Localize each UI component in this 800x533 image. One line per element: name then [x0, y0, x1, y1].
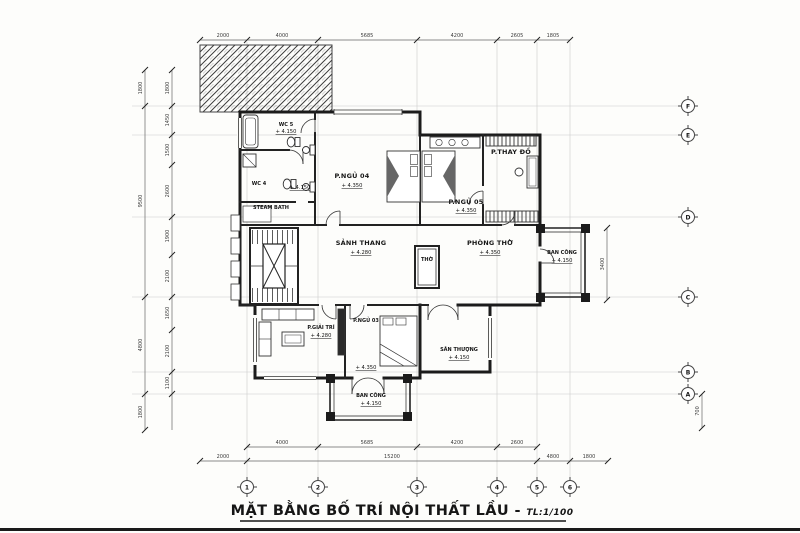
altar	[415, 246, 439, 288]
svg-text:E: E	[686, 133, 690, 140]
svg-text:C: C	[686, 295, 691, 302]
svg-text:1800: 1800	[165, 82, 171, 95]
floor-plan-drawing: WC 5 + 4.150 WC 4 + 4.150 STEAM BATH P.N…	[0, 0, 800, 533]
tv-console	[338, 309, 345, 355]
grid-bubble-5: 5	[527, 477, 547, 497]
grid-bubble-3: 3	[407, 477, 427, 497]
room-label: WC 5	[279, 122, 294, 128]
room-label: SẢNH THANG	[336, 237, 387, 247]
svg-text:1805: 1805	[547, 33, 560, 39]
room-label: WC 4	[252, 181, 267, 187]
room-label: P.NGỦ 03	[353, 316, 379, 324]
svg-text:B: B	[686, 370, 691, 377]
svg-text:1100: 1100	[165, 377, 171, 390]
room-label: P.NGỦ 04	[334, 170, 369, 180]
svg-text:4000: 4000	[276, 33, 289, 39]
grid-bubble-A: A	[678, 384, 698, 404]
grid-bubble-1: 1	[237, 477, 257, 497]
elevation-label: + 4.280	[351, 250, 372, 256]
svg-text:2: 2	[316, 485, 320, 492]
grid-bubble-E: E	[678, 125, 698, 145]
room-label: STEAM BATH	[253, 205, 289, 211]
svg-text:2000: 2000	[217, 454, 230, 460]
elevation-label: + 4.150	[361, 401, 382, 407]
room-label: P.GIẢI TRÍ	[307, 323, 334, 331]
svg-text:4800: 4800	[138, 339, 144, 352]
elevation-label: + 4.150	[290, 185, 311, 191]
elevation-label: + 4.350	[356, 365, 377, 371]
svg-text:4200: 4200	[451, 440, 464, 446]
elevation-label: + 4.280	[311, 333, 332, 339]
grid-bubbles-rows: F E D C B A	[678, 96, 698, 404]
grid-bubble-B: B	[678, 362, 698, 382]
svg-text:2600: 2600	[165, 185, 171, 198]
elevation-label: + 4.350	[480, 250, 501, 256]
room-label: BAN CÔNG	[547, 249, 577, 256]
svg-text:1800: 1800	[138, 82, 144, 95]
svg-text:9500: 9500	[138, 195, 144, 208]
scan-edge-line	[0, 528, 800, 531]
drawing-title: MẶT BẰNG BỐ TRÍ NỘI THẤT LẦU - TL:1/100	[231, 499, 574, 519]
sink	[303, 147, 310, 154]
grid-bubbles-columns: 1 2 3 4 5 6	[237, 477, 580, 497]
title-block: MẶT BẰNG BỐ TRÍ NỘI THẤT LẦU - TL:1/100	[231, 499, 574, 521]
wardrobe	[486, 211, 538, 222]
svg-text:4: 4	[495, 485, 499, 492]
svg-text:2600: 2600	[511, 440, 524, 446]
grid-bubble-2: 2	[308, 477, 328, 497]
elevation-label: + 4.350	[456, 208, 477, 214]
stool	[515, 168, 523, 176]
svg-text:15200: 15200	[384, 454, 400, 460]
svg-text:700: 700	[695, 406, 701, 416]
svg-text:5685: 5685	[361, 440, 374, 446]
staircase	[250, 228, 298, 304]
grid-bubble-F: F	[678, 96, 698, 116]
drawing-scale: TL:1/100	[526, 508, 573, 518]
svg-text:5685: 5685	[361, 33, 374, 39]
svg-text:A: A	[686, 392, 691, 399]
svg-text:6: 6	[568, 485, 572, 492]
svg-text:2100: 2100	[165, 270, 171, 283]
svg-text:1: 1	[245, 485, 249, 492]
svg-text:1800: 1800	[583, 454, 596, 460]
svg-text:4800: 4800	[547, 454, 560, 460]
room-label: PHÒNG THỜ	[467, 238, 513, 247]
svg-text:D: D	[686, 215, 691, 222]
svg-text:3400: 3400	[600, 258, 606, 271]
svg-text:1800: 1800	[138, 406, 144, 419]
elevation-label: + 4.150	[276, 129, 297, 135]
room-label: THỜ	[421, 256, 434, 263]
balcony-railings	[330, 228, 585, 420]
room-label: P.NGỦ 05	[448, 196, 483, 206]
roof-hatch	[200, 45, 332, 112]
room-label: BAN CÔNG	[356, 392, 386, 399]
grid-bubble-6: 6	[560, 477, 580, 497]
grid-bubble-4: 4	[487, 477, 507, 497]
sofa	[262, 309, 314, 320]
svg-text:1500: 1500	[165, 144, 171, 157]
room-label: SÂN THƯỢNG	[440, 346, 478, 353]
room-label: P.THAY ĐỒ	[491, 146, 531, 156]
toilet	[287, 137, 295, 147]
drawing-title-text: MẶT BẰNG BỐ TRÍ NỘI THẤT LẦU -	[231, 499, 527, 519]
elevation-label: + 4.150	[449, 355, 470, 361]
wardrobe	[486, 136, 536, 146]
svg-text:1450: 1450	[165, 114, 171, 127]
grid-bubble-D: D	[678, 207, 698, 227]
svg-text:2000: 2000	[217, 33, 230, 39]
svg-text:F: F	[686, 104, 690, 111]
elevation-label: + 4.350	[342, 183, 363, 189]
grid-bubble-C: C	[678, 287, 698, 307]
svg-text:5: 5	[535, 485, 539, 492]
floor-plan-sheet: WC 5 + 4.150 WC 4 + 4.150 STEAM BATH P.N…	[0, 0, 800, 533]
svg-text:1650: 1650	[165, 307, 171, 320]
elevation-label: + 4.150	[552, 258, 573, 264]
svg-text:1900: 1900	[165, 230, 171, 243]
svg-text:3: 3	[415, 485, 419, 492]
svg-text:4000: 4000	[276, 440, 289, 446]
svg-text:2605: 2605	[511, 33, 524, 39]
svg-text:4200: 4200	[451, 33, 464, 39]
svg-text:2100: 2100	[165, 345, 171, 358]
